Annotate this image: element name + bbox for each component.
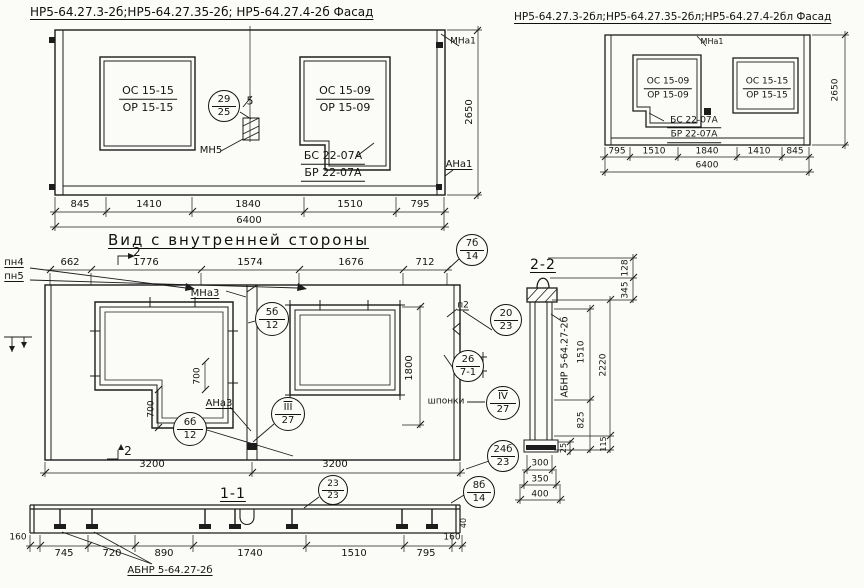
label-40: 40: [460, 518, 468, 528]
position-marker-circle: III27: [271, 397, 305, 431]
marker-top: III: [275, 403, 301, 415]
fraction-top: БС 22-07А: [301, 149, 365, 165]
label-845: 845: [786, 148, 803, 157]
label-720: 720: [102, 549, 121, 559]
inner-view-title: Вид с внутренней стороны: [108, 233, 369, 248]
marker-bottom: 14: [473, 493, 486, 504]
fraction-top: ОС 15-15: [743, 76, 791, 89]
label-2: 2: [124, 445, 132, 457]
marker-bottom: 14: [466, 251, 479, 262]
position-marker-circle: 5б12: [255, 302, 289, 336]
label-700: 700: [148, 400, 157, 417]
label-115: 115: [600, 436, 608, 451]
label-1800: 1800: [405, 355, 415, 380]
marker-top: IV: [490, 392, 516, 404]
label-1410: 1410: [136, 200, 161, 210]
fraction-bottom: БР 22-07А: [667, 129, 721, 143]
fraction-bottom: ОР 15-09: [316, 100, 374, 115]
label-662: 662: [60, 258, 79, 268]
label-25: 25: [560, 443, 568, 453]
blueprint-page: НР5-64.27.3-2б;НР5-64.27.35-2б; НР5-64.2…: [0, 0, 864, 588]
label-1510: 1510: [578, 341, 587, 364]
label-ана3: АНа3: [206, 399, 233, 409]
facade-right-anchor-mark: [704, 108, 711, 115]
label-795: 795: [608, 148, 625, 157]
position-marker-circle: 2323: [318, 475, 348, 505]
label-ана1: АНа1: [446, 160, 473, 170]
section-1-1-title: 1-1: [220, 487, 246, 501]
inner-view-panel: [45, 285, 460, 460]
label-745: 745: [54, 549, 73, 559]
position-marker-circle: IV27: [486, 386, 520, 420]
label-1776: 1776: [133, 258, 158, 268]
fraction-bottom: БР 22-07А: [301, 165, 365, 182]
label-795: 795: [416, 549, 435, 559]
label-2220: 2220: [600, 354, 609, 377]
label-пн5: пн5: [4, 272, 23, 282]
label-1676: 1676: [338, 258, 363, 268]
fraction-top: ОС 15-15: [119, 84, 177, 100]
marker-bottom: 23: [327, 491, 338, 501]
marker-top: 7б: [460, 239, 485, 251]
section-2-2-base-fill: [526, 445, 556, 450]
marker-top: 23: [322, 480, 345, 491]
marker-bottom: 12: [184, 430, 197, 441]
facade-right-title: НР5-64.27.3-2бл;НР5-64.27.35-2бл;НР5-64.…: [514, 12, 831, 23]
label-712: 712: [415, 258, 434, 268]
fraction-label: ОС 15-09ОР 15-09: [644, 76, 692, 102]
label-пн4: пн4: [4, 258, 23, 268]
fraction-label: БС 22-07АБР 22-07А: [667, 115, 721, 143]
marker-bottom: 23: [497, 457, 510, 468]
marker-bottom: 23: [500, 321, 513, 332]
label-6400: 6400: [696, 162, 719, 171]
fraction-label: ОС 15-15ОР 15-15: [743, 76, 791, 102]
label-1574: 1574: [237, 258, 262, 268]
label-мна3: МНа3: [191, 289, 220, 299]
fraction-label: БС 22-07АБР 22-07А: [301, 149, 365, 182]
label-6400: 6400: [236, 216, 261, 226]
fraction-label: ОС 15-15ОР 15-15: [119, 84, 177, 115]
marker-top: 26: [456, 355, 481, 367]
label-мна1: МНа1: [701, 38, 724, 46]
label-шпонки: шпонки: [428, 398, 465, 407]
label-1510: 1510: [341, 549, 366, 559]
label-п2: п2: [457, 302, 469, 311]
label-400: 400: [531, 491, 548, 500]
label-1740: 1740: [237, 549, 262, 559]
facade-left-anchor-marks: [49, 37, 443, 190]
marker-top: 20: [494, 309, 519, 321]
label-мн5: МН5: [200, 146, 223, 156]
position-marker-circle: 7б14: [456, 234, 488, 266]
fraction-bottom: ОР 15-15: [119, 100, 177, 115]
marker-bottom: 7-1: [460, 367, 476, 378]
label-2: 2: [133, 246, 141, 258]
section-2-2: [524, 278, 560, 452]
label-350: 350: [531, 476, 548, 485]
position-marker-circle: 2925: [208, 90, 240, 122]
facade-left-title: НР5-64.27.3-2б;НР5-64.27.35-2б; НР5-64.2…: [30, 6, 373, 18]
fraction-top: БС 22-07А: [667, 115, 721, 128]
label-2650: 2650: [832, 79, 841, 102]
label-1840: 1840: [696, 148, 719, 157]
marker-top: 24б: [491, 445, 516, 457]
label-3200: 3200: [322, 460, 347, 470]
label-700: 700: [194, 367, 203, 384]
position-marker-circle: 267-1: [452, 350, 484, 382]
marker-bottom: 27: [497, 404, 510, 415]
label-845: 845: [70, 200, 89, 210]
label-300: 300: [531, 460, 548, 469]
label-1840: 1840: [235, 200, 260, 210]
section-2-2-title: 2-2: [530, 258, 556, 272]
label-3200: 3200: [139, 460, 164, 470]
position-marker-circle: 24б23: [487, 440, 519, 472]
position-marker-circle: 6б12: [173, 412, 207, 446]
label-825: 825: [578, 411, 587, 428]
label-890: 890: [154, 549, 173, 559]
marker-bottom: 25: [218, 107, 231, 118]
label-мна1: МНа1: [450, 38, 476, 47]
position-marker-circle: 2023: [490, 304, 522, 336]
fraction-bottom: ОР 15-09: [644, 90, 692, 102]
label-абнр-5-64-27-2б: АБНР 5-64.27-2б: [127, 566, 212, 576]
fraction-top: ОС 15-09: [644, 76, 692, 89]
label-5: 5: [247, 96, 254, 107]
label-128: 128: [622, 259, 631, 276]
label-1410: 1410: [748, 148, 771, 157]
marker-top: 8б: [467, 481, 492, 493]
position-marker-circle: 8б14: [463, 476, 495, 508]
marker-top: 6б: [177, 418, 203, 430]
marker-top: 29: [212, 95, 237, 107]
label-2650: 2650: [465, 99, 475, 124]
fraction-label: ОС 15-09ОР 15-09: [316, 84, 374, 115]
marker-top: 5б: [259, 308, 285, 320]
label-1510: 1510: [337, 200, 362, 210]
label-795: 795: [410, 200, 429, 210]
label-абнр-5-64-27-2б: АБНР 5-64.27-2б: [560, 317, 570, 398]
label-1510: 1510: [643, 148, 666, 157]
fraction-top: ОС 15-09: [316, 84, 374, 100]
label-345: 345: [622, 281, 631, 298]
fraction-bottom: ОР 15-15: [743, 90, 791, 102]
label-160: 160: [9, 534, 26, 543]
marker-bottom: 27: [282, 415, 295, 426]
inner-view-leaders: [4, 256, 492, 508]
marker-bottom: 12: [266, 320, 279, 331]
label-160: 160: [443, 534, 460, 543]
facade-left-panel: [55, 26, 459, 195]
